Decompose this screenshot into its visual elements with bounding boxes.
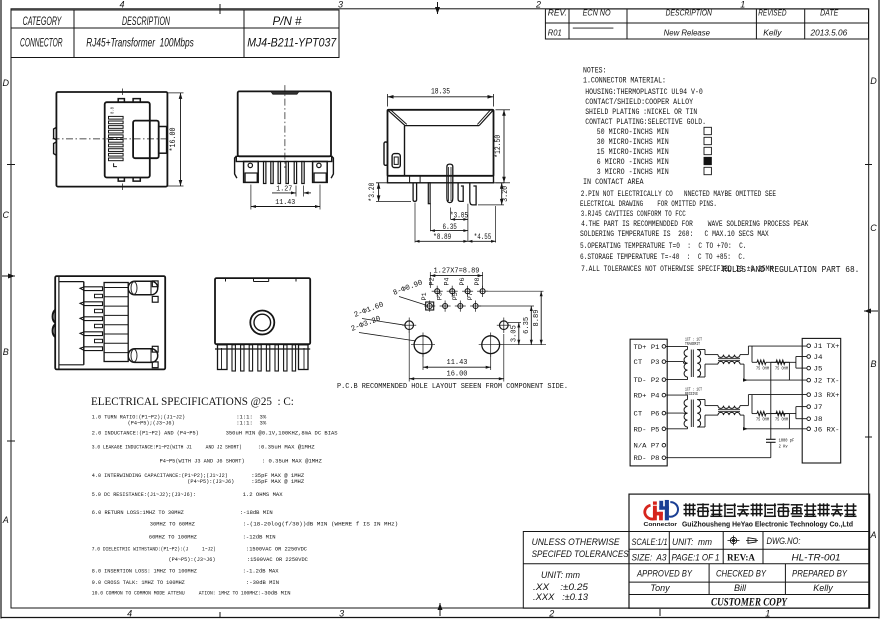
svg-text:D: D [3, 78, 10, 88]
svg-text:RJ45+Transformer 100Mbps: RJ45+Transformer 100Mbps [86, 35, 194, 49]
svg-text:10.0 COMMON TO COMMON MODE ATT: 10.0 COMMON TO COMMON MODE ATTENU ATION:… [92, 590, 259, 597]
svg-text:A: A [2, 515, 9, 525]
svg-text:N/A P7: N/A P7 [634, 443, 660, 450]
svg-text:CONTACT PLATING:SELECTIVE GOLD: CONTACT PLATING:SELECTIVE GOLD. [585, 117, 706, 127]
svg-text:8.89: 8.89 [533, 310, 541, 327]
svg-text:15 MICRO-INCHS MIN: 15 MICRO-INCHS MIN [597, 147, 669, 157]
svg-text::1500VAC OR 2250VDC: :1500VAC OR 2250VDC [247, 556, 309, 563]
svg-text:J1 TX+: J1 TX+ [814, 343, 840, 350]
svg-text::-30dB MIN: :-30dB MIN [258, 590, 291, 597]
svg-text:30MHZ TO 60MHZ: 30MHZ TO 60MHZ [150, 521, 196, 528]
svg-text:New Release: New Release [664, 27, 711, 37]
svg-text:.XX :±0.25: .XX :±0.25 [533, 582, 589, 592]
svg-text:ELECTRICAL SPECIFICATIONS @25: ELECTRICAL SPECIFICATIONS @25 : C: [91, 394, 294, 408]
svg-text:Tony: Tony [650, 583, 670, 593]
svg-text::1:1: 3%: :1:1: 3% [236, 419, 267, 426]
svg-text:P1: P1 [421, 292, 428, 300]
svg-text:UNIT: mm: UNIT: mm [541, 570, 580, 580]
svg-text:Kelly: Kelly [813, 583, 833, 593]
svg-text:RD- P8: RD- P8 [634, 455, 660, 462]
svg-text:A: A [869, 530, 876, 540]
svg-text:REV:A: REV:A [727, 554, 755, 564]
svg-text:D: D [870, 76, 877, 86]
svg-text:2013.5.06: 2013.5.06 [810, 27, 848, 37]
svg-text:J6 RX-: J6 RX- [814, 426, 840, 433]
svg-text:30 MICRO-INCHS MIN: 30 MICRO-INCHS MIN [597, 137, 669, 147]
svg-text:R01: R01 [548, 27, 562, 37]
svg-text:CONTACT/SHIELD:COOPER ALLOY: CONTACT/SHIELD:COOPER ALLOY [585, 97, 693, 107]
svg-text:C: C [870, 223, 877, 233]
svg-text:ECN NO: ECN NO [583, 8, 611, 18]
svg-text:3: 3 [339, 609, 344, 619]
svg-text:J3 RX+: J3 RX+ [814, 392, 840, 399]
svg-text:CATEGORY: CATEGORY [23, 14, 62, 28]
svg-text:Kelly: Kelly [763, 27, 782, 37]
svg-text:3.20: 3.20 [501, 186, 510, 202]
svg-text:C: C [3, 210, 10, 220]
svg-text:CUSTOMER COPY: CUSTOMER COPY [711, 597, 788, 609]
svg-text:CHECKED BY: CHECKED BY [716, 569, 767, 579]
svg-text:*3.20: *3.20 [368, 182, 377, 201]
svg-text:11.43: 11.43 [275, 199, 295, 207]
svg-text:P4~P5(WITH J3 AND J6 SHORT): P4~P5(WITH J3 AND J6 SHORT) [160, 458, 245, 465]
svg-text:HL-TR-001: HL-TR-001 [792, 553, 841, 563]
svg-text:HOUSING:THERMOPLASTIC UL94 V-0: HOUSING:THERMOPLASTIC UL94 V-0 [585, 87, 703, 97]
svg-text:ELECTRICAL DRAWING FOR OMIT: ELECTRICAL DRAWING FOR OMITTED PINS. [580, 199, 717, 209]
svg-text:J4: J4 [814, 354, 823, 361]
svg-text:2 Kv: 2 Kv [779, 444, 788, 450]
svg-text:RD- P5: RD- P5 [634, 426, 660, 433]
svg-text:PREPARED BY: PREPARED BY [792, 569, 848, 579]
svg-text::-30dB MIN: :-30dB MIN [246, 579, 279, 586]
svg-text:0.8: 0.8 [110, 107, 116, 114]
svg-text:CT P6: CT P6 [634, 411, 660, 418]
svg-text:J8: J8 [814, 416, 823, 423]
svg-text:6.STORAGE TEMPERATURE T=-40 :: 6.STORAGE TEMPERATURE T=-40 : C TO +85: … [580, 252, 746, 262]
svg-text:Bill: Bill [734, 583, 747, 593]
svg-text:11.43: 11.43 [447, 359, 468, 367]
svg-text:GuiZhousheng HeYao Electronic: GuiZhousheng HeYao Electronic Technology… [682, 519, 853, 528]
svg-text:1: 1 [765, 609, 770, 619]
svg-text:(P4~P5):(J3~J6): (P4~P5):(J3~J6) [187, 478, 234, 485]
svg-text:75 OHM: 75 OHM [775, 417, 788, 423]
svg-text:75 OHM: 75 OHM [775, 365, 788, 371]
svg-text:1.27X7=8.89: 1.27X7=8.89 [434, 268, 480, 276]
svg-text:TD- P2: TD- P2 [634, 377, 660, 384]
svg-text::1500VAC OR 2250VDC: :1500VAC OR 2250VDC [246, 545, 308, 552]
svg-text:4: 4 [119, 0, 124, 10]
svg-text:*3.05: *3.05 [450, 212, 468, 221]
svg-text:J2 TX-: J2 TX- [814, 378, 840, 385]
svg-text:1.2 OHMS MAX: 1.2 OHMS MAX [243, 491, 284, 498]
svg-text:P5: P5 [452, 292, 459, 300]
svg-text:RULES AND REGULATION PART 68.: RULES AND REGULATION PART 68. [722, 264, 859, 275]
svg-text:6.35: 6.35 [523, 316, 531, 333]
svg-text:SOLDERING TEMPERATURE IS 260:: SOLDERING TEMPERATURE IS 260: C MAX.10 S… [580, 229, 769, 239]
svg-text:: 0.35uH MAX @1MHZ: : 0.35uH MAX @1MHZ [262, 458, 323, 465]
svg-text:P3: P3 [437, 292, 444, 300]
svg-text:DWG.NO:: DWG.NO: [767, 536, 801, 546]
svg-text::-18dB MIN: :-18dB MIN [240, 509, 273, 516]
svg-text:PAGE:1 OF 1: PAGE:1 OF 1 [672, 553, 720, 563]
svg-text:1.CONNECTOR MATERIAL:: 1.CONNECTOR MATERIAL: [583, 75, 666, 85]
svg-text:MJ4-B211-YPT037: MJ4-B211-YPT037 [247, 35, 337, 49]
svg-text:REVISED: REVISED [758, 8, 786, 18]
svg-text:2: 2 [535, 0, 541, 10]
svg-text:*4.55: *4.55 [474, 233, 492, 242]
svg-text:4.THE PART IS RECOMMENDDED FOR: 4.THE PART IS RECOMMENDDED FOR WAVE SOLD… [581, 219, 809, 229]
svg-text:J7: J7 [814, 404, 823, 411]
svg-text:6 MICRO -INCHS MIN: 6 MICRO -INCHS MIN [597, 157, 669, 167]
svg-text:P4: P4 [444, 277, 451, 285]
svg-text:J5: J5 [814, 366, 823, 373]
svg-text:CT P3: CT P3 [634, 359, 660, 366]
svg-text:2: 2 [548, 609, 554, 619]
svg-text:50 MICRO-INCHS MIN: 50 MICRO-INCHS MIN [597, 127, 669, 137]
svg-text:P6: P6 [459, 277, 466, 285]
svg-text:RD+ P4: RD+ P4 [634, 393, 660, 400]
svg-text:60MHZ TO 100MHZ: 60MHZ TO 100MHZ [149, 533, 198, 540]
svg-text:UNIT: mm: UNIT: mm [672, 537, 712, 547]
svg-text:DESCRIPTION: DESCRIPTION [122, 14, 170, 28]
svg-text:6.35: 6.35 [443, 223, 458, 232]
svg-text:4: 4 [127, 609, 132, 619]
svg-text:1.27: 1.27 [276, 185, 292, 193]
svg-text:UNLESS OTHERWISE: UNLESS OTHERWISE [532, 537, 621, 547]
svg-text:1000 pF: 1000 pF [779, 438, 795, 444]
svg-text:5.OPERATING TEMPERATURE T=0 :: 5.OPERATING TEMPERATURE T=0 : C TO +70: … [580, 241, 747, 251]
svg-text:2.PIN NOT ELECTRICALLY CO NN: 2.PIN NOT ELECTRICALLY CO NNECTED MAYBE … [581, 189, 776, 199]
svg-text:APPROVED BY: APPROVED BY [636, 569, 693, 579]
svg-text:3.RJ45 CAVITIES CONFORM TO FCC: 3.RJ45 CAVITIES CONFORM TO FCC [581, 209, 686, 219]
svg-text:5.0 DC RESISTANCE:(J1~J2);(J3~: 5.0 DC RESISTANCE:(J1~J2);(J3~J6): [92, 491, 196, 498]
svg-text::0.35uH MAX @1MHZ: :0.35uH MAX @1MHZ [258, 444, 316, 451]
svg-text:3: 3 [338, 0, 343, 10]
svg-text:75 OHM: 75 OHM [756, 365, 769, 371]
svg-text:RECEIVE: RECEIVE [685, 392, 698, 397]
svg-text:*16.00: *16.00 [169, 127, 178, 151]
svg-text:1: 1 [740, 0, 745, 10]
svg-text:6.0 RETURN LOSS:1MHZ TO 30MHZ: 6.0 RETURN LOSS:1MHZ TO 30MHZ [92, 509, 185, 516]
svg-text:SIZE: A3: SIZE: A3 [632, 553, 667, 563]
svg-text:8.0 INSERTION LOSS: 1MHZ TO 10: 8.0 INSERTION LOSS: 1MHZ TO 100MHZ [92, 567, 198, 574]
svg-text:3.05: 3.05 [510, 325, 518, 342]
svg-text:REV.: REV. [548, 8, 567, 18]
svg-text:3 MICRO -INCHS MIN: 3 MICRO -INCHS MIN [597, 167, 669, 177]
svg-text:SHIELD PLATING :NICKEL OR TIN: SHIELD PLATING :NICKEL OR TIN [585, 107, 697, 117]
svg-text:3.0 LEAKAGE INDUCTANCE:P1~P2(W: 3.0 LEAKAGE INDUCTANCE:P1~P2(WITH J1 AND… [92, 444, 242, 451]
svg-text:P2: P2 [429, 277, 436, 285]
svg-text::-(18-20log(f/30))dB MIN (WHER: :-(18-20log(f/30))dB MIN (WHERE f IS IN … [243, 521, 399, 528]
svg-text:(P4~P5);(J3~J6): (P4~P5);(J3~J6) [128, 419, 175, 426]
svg-text:75 OHM: 75 OHM [756, 417, 769, 423]
svg-text:DATE: DATE [820, 8, 838, 18]
svg-text:.XXX :±0.13: .XXX :±0.13 [533, 592, 588, 602]
svg-text:*8.89: *8.89 [433, 233, 451, 242]
svg-text:2.0 INDUCTANCE:(P1~P2) AND (P4: 2.0 INDUCTANCE:(P1~P2) AND (P4~P5) [92, 430, 199, 437]
svg-text:SCALE:1/1: SCALE:1/1 [632, 537, 668, 547]
svg-text:NOTES:: NOTES: [583, 65, 606, 75]
svg-text:CONNECTOR: CONNECTOR [20, 35, 63, 49]
svg-text:7.0 DIELECTRIC WITHSTAND:(P1~P: 7.0 DIELECTRIC WITHSTAND:(P1~P2):(J 1~J2… [92, 545, 216, 552]
svg-text:P7: P7 [467, 292, 474, 300]
svg-text:B: B [870, 359, 876, 369]
svg-text::-1.2dB MAX: :-1.2dB MAX [243, 567, 280, 574]
svg-text:Connector: Connector [644, 522, 679, 528]
svg-text:DESCRIPTION: DESCRIPTION [666, 8, 713, 18]
svg-text:18.35: 18.35 [431, 87, 450, 96]
svg-text:P/N #: P/N # [273, 14, 302, 28]
svg-text:SPECIFED TOLERANCES: SPECIFED TOLERANCES [532, 549, 629, 559]
svg-text:*12.50: *12.50 [494, 135, 503, 158]
svg-text:B: B [3, 347, 9, 357]
svg-text::35pF MAX @ 1MHZ: :35pF MAX @ 1MHZ [251, 478, 305, 485]
svg-text:P.C.B RECOMMENDED HOLE LAYOUT: P.C.B RECOMMENDED HOLE LAYOUT SEEEN FROM… [337, 383, 568, 391]
svg-text:IN CONTACT AREA: IN CONTACT AREA [583, 177, 644, 187]
svg-text:350uH MIN @0.1V,100KHZ,8mA DC: 350uH MIN @0.1V,100KHZ,8mA DC BIAS [226, 430, 339, 437]
svg-text:16.00: 16.00 [447, 371, 468, 379]
svg-text:(P4~P5):(J3~J6): (P4~P5):(J3~J6) [169, 556, 216, 563]
svg-text:P8: P8 [474, 277, 481, 285]
svg-text:9.0 CROSS TALK: 1MHZ TO 100MHZ: 9.0 CROSS TALK: 1MHZ TO 100MHZ [92, 579, 186, 586]
svg-text::-12dB MIN: :-12dB MIN [243, 533, 276, 540]
svg-text:TD+ P1: TD+ P1 [634, 344, 660, 351]
